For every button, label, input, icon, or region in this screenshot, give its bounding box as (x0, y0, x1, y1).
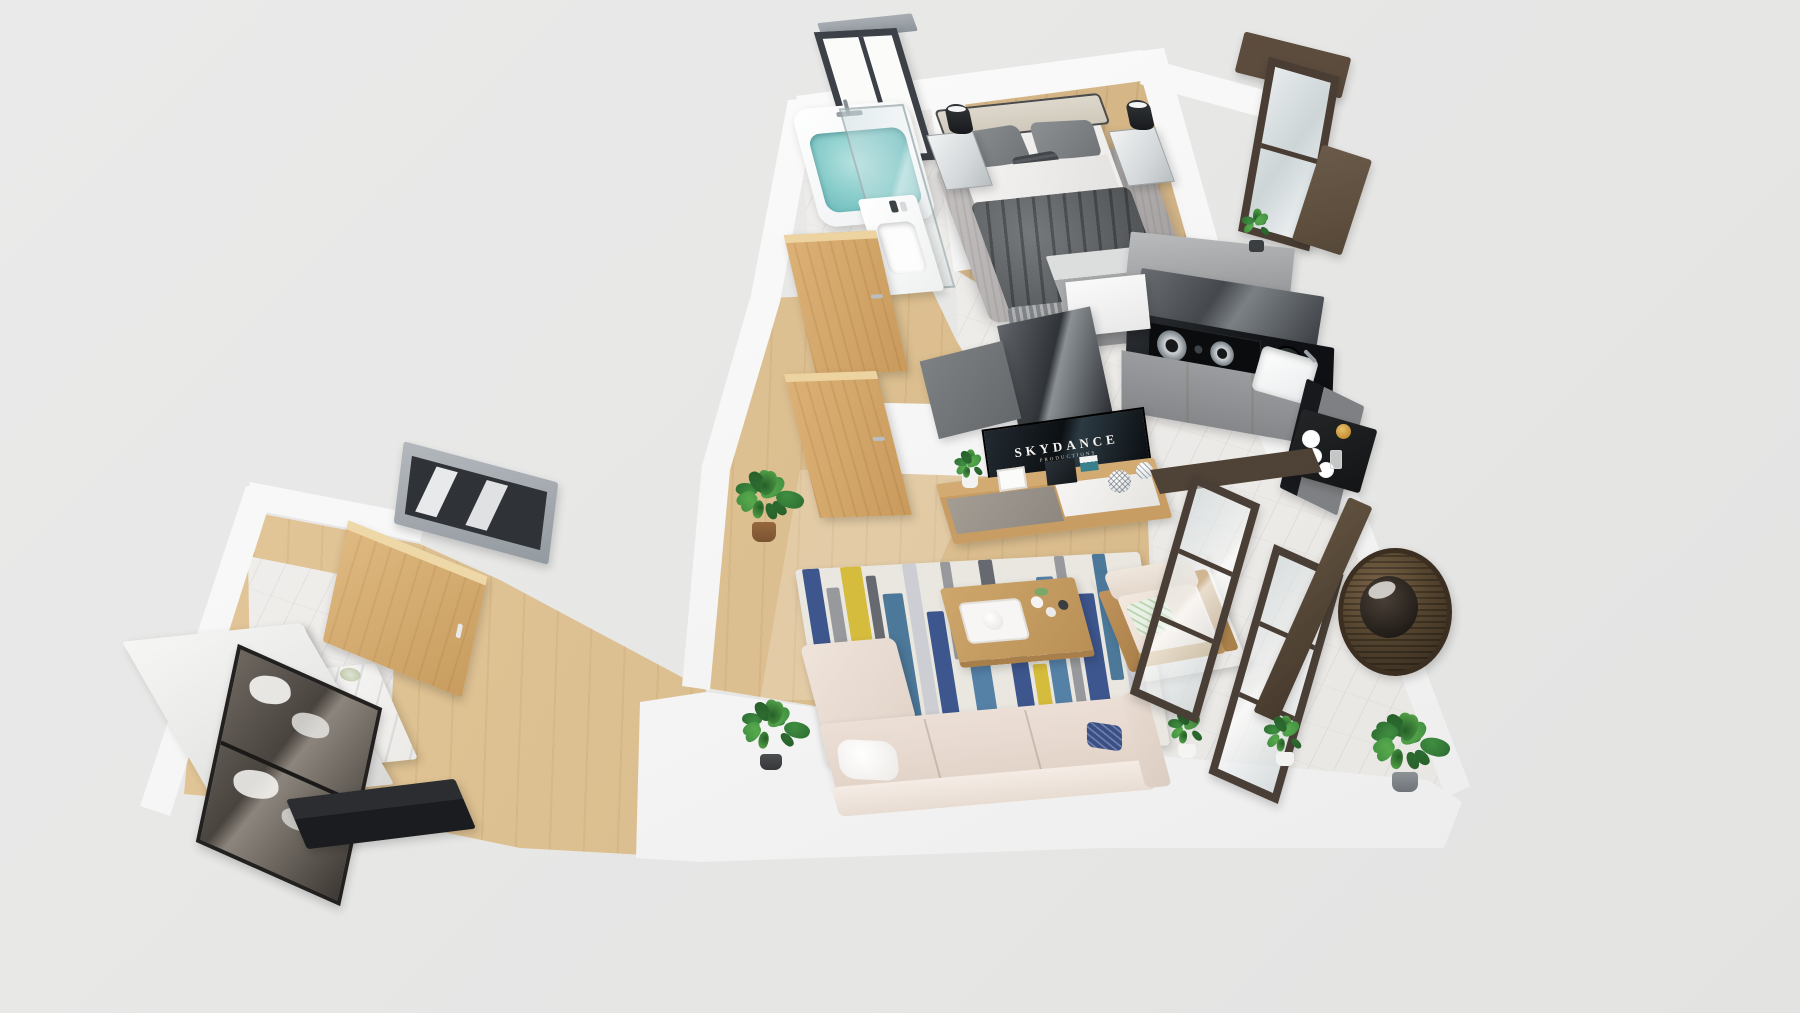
navy-pillow (1087, 721, 1122, 751)
plate (1302, 430, 1320, 448)
plant-leaf (1290, 737, 1303, 751)
plant-pot (1249, 240, 1264, 252)
balcony-plant-large (1352, 690, 1456, 794)
door-mullion (1178, 548, 1232, 576)
vent-slat (415, 467, 458, 518)
cushion-seam (923, 719, 942, 782)
decor-sphere (1108, 470, 1131, 493)
plant-pot (752, 522, 776, 542)
burner (1210, 339, 1234, 367)
lamp-top (1128, 102, 1147, 108)
gold-cup (1336, 424, 1351, 439)
vanity-flowers (337, 667, 363, 683)
door-mullion (1159, 616, 1213, 644)
potted-plant-corner (722, 448, 806, 544)
plant-pot (1392, 772, 1418, 792)
balcony-plant-small (1254, 706, 1316, 766)
hanging-egg-chair (1338, 542, 1446, 670)
tv-stand-plant (948, 446, 992, 488)
table-vase (1029, 596, 1044, 609)
lamp-top (947, 106, 966, 112)
clothes-white (248, 674, 291, 705)
cabinet-handle-icon (455, 623, 463, 639)
hob-knob (1194, 345, 1202, 354)
vent-slat (465, 480, 508, 531)
clothes-white (233, 768, 279, 801)
clothes-white (291, 709, 330, 741)
white-blanket (836, 739, 900, 781)
door-handle-icon (872, 437, 885, 441)
plant-pot (1276, 752, 1294, 766)
sofa-chaise (800, 637, 917, 729)
vanity-bottles (899, 201, 908, 211)
door-handle-icon (870, 294, 883, 299)
cabinet-seam (1187, 362, 1189, 423)
door-top-edge (784, 230, 878, 243)
table-bowl (1057, 600, 1070, 611)
window-mullion (1261, 143, 1318, 164)
tv-stand-drawer-gray (946, 486, 1064, 534)
window-vent-dark (405, 456, 547, 550)
vanity-bottles (889, 200, 900, 212)
plant-pot (760, 754, 782, 770)
table-flowers (1033, 587, 1049, 596)
books (1079, 455, 1099, 472)
floorplan-scene: SKYDANCE PRODUCTIONS (0, 0, 1800, 1013)
plant-leaf (1260, 225, 1271, 236)
potted-plant-floor (726, 682, 814, 770)
black-album (1045, 458, 1078, 485)
cushion-seam (1024, 710, 1043, 773)
drinking-glass (1330, 450, 1342, 469)
photo-frame (997, 466, 1028, 492)
plant-leaf (1191, 729, 1204, 743)
plant-pot (1178, 744, 1196, 758)
potted-plant-bedroom (1232, 200, 1282, 252)
